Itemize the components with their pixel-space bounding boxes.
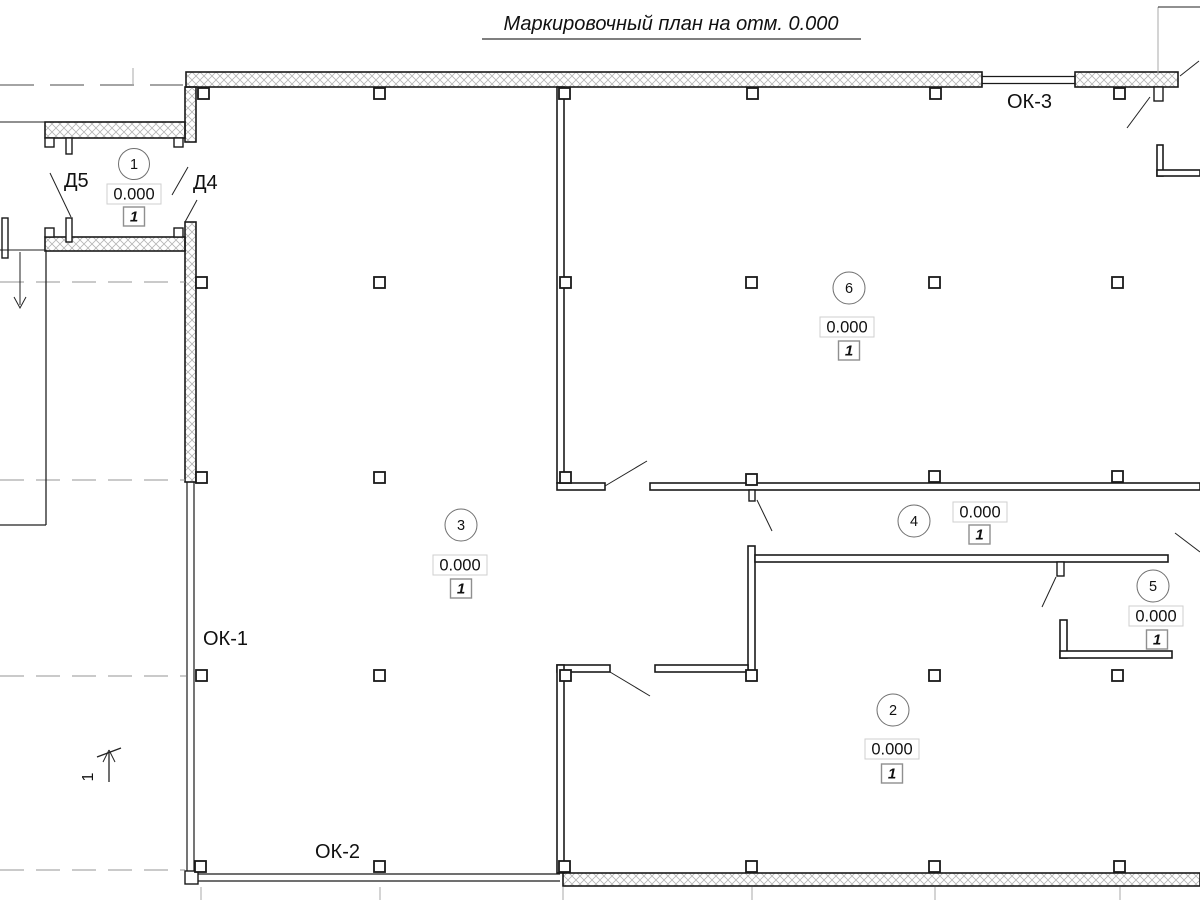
column-marker [196,277,207,288]
door-swing [757,500,772,531]
partition-horizontal-mid [650,483,1200,490]
wall-end-mark [45,228,54,237]
section-number: 1 [80,772,97,781]
wall-bottom [563,873,1200,886]
door-swing [1042,577,1056,607]
column-marker [198,88,209,99]
room-marker-1: 1 0.000 1 [107,149,161,227]
room-number: 6 [845,281,853,297]
column-marker [1112,471,1123,482]
partition-foot [557,483,605,490]
window-ok1-glazing [187,482,194,871]
door-swing-d4-lower [185,200,197,222]
finish-type-value: 1 [845,343,853,360]
column-marker [560,472,571,483]
door-label-d4: Д4 [193,172,218,194]
column-marker [746,861,757,872]
elevation-value: 0.000 [871,741,912,759]
section-mark: 1 [80,748,121,782]
column-marker [559,88,570,99]
column-markers [195,88,1125,872]
elevation-value: 0.000 [826,319,867,337]
column-marker [929,471,940,482]
column-marker [560,277,571,288]
stair-area [0,122,46,525]
finish-type-value: 1 [975,527,983,544]
marking-plan-drawing: Маркировочный план на отм. 0.000 [0,0,1200,900]
leader-line [1180,61,1199,76]
room-number: 2 [889,703,897,719]
wall-vestibule-upper [45,122,185,138]
column-marker [746,277,757,288]
finish-type-value: 1 [457,581,465,598]
window-corner-post [185,871,198,884]
partition-horizontal-45 [755,555,1168,562]
elevation-value: 0.000 [959,504,1000,522]
wall-top-right [1075,72,1178,87]
column-marker [559,861,570,872]
door-jamb [1057,562,1064,576]
column-marker [374,670,385,681]
column-marker [1112,670,1123,681]
column-marker [374,861,385,872]
window-label-ok2: ОК-2 [315,841,360,863]
finish-type-value: 1 [130,209,138,226]
room-number: 4 [910,514,918,530]
column-marker [1114,861,1125,872]
window-ok2-glazing [185,871,560,884]
column-marker [746,474,757,485]
door-post-edge [2,218,8,258]
wall-left-vertical-upper [185,87,196,142]
finish-type-value: 1 [888,766,896,783]
room-number: 5 [1149,579,1157,595]
window-label-ok1: ОК-1 [203,628,248,650]
room-marker-2: 2 0.000 1 [865,694,919,783]
door-post-d5-upper [66,138,72,154]
wall-end-mark [174,138,183,147]
column-marker [374,472,385,483]
room-marker-3: 3 0.000 1 [433,509,487,598]
column-marker [929,277,940,288]
column-marker [196,472,207,483]
column-marker [196,670,207,681]
door-label-d5: Д5 [64,170,89,192]
door-jamb [749,490,755,501]
column-marker [929,670,940,681]
column-marker [747,88,758,99]
column-marker [746,670,757,681]
wall-end-mark [174,228,183,237]
column-marker [560,670,571,681]
partition-vertical-lower [557,665,564,873]
column-marker [929,861,940,872]
partition-l-topright-horiz [1157,170,1200,176]
room-number: 3 [457,518,465,534]
partition-horizontal-lower [655,665,748,672]
door-swing [605,461,647,486]
elevation-value: 0.000 [1135,608,1176,626]
room-number: 1 [130,157,138,173]
wall-top-main [186,72,982,87]
hatched-walls [45,72,1200,886]
section-arrow [103,750,109,762]
door-post-d5-lower [66,218,72,242]
partition-vertical-45 [748,546,755,680]
finish-type-value: 1 [1153,632,1161,649]
elevation-value: 0.000 [113,186,154,204]
leader-line [1127,97,1150,128]
column-marker [374,277,385,288]
wall-end-mark [45,138,54,147]
door-swings [50,61,1200,696]
plan-title: Маркировочный план на отм. 0.000 [503,13,838,35]
elevation-value: 0.000 [439,557,480,575]
room-marker-6: 6 0.000 1 [820,272,874,360]
door-swing [610,672,650,696]
column-marker [1114,88,1125,99]
door-swing-d4-upper [172,167,188,195]
room-marker-5: 5 0.000 1 [1129,570,1183,649]
door-jamb [1154,87,1163,101]
window-label-ok3: ОК-3 [1007,91,1052,113]
wall-left-vertical-lower [185,222,196,482]
column-marker [374,88,385,99]
column-marker [930,88,941,99]
window-ok3-glazing [982,74,1075,86]
column-marker [195,861,206,872]
floor-plan-canvas: Маркировочный план на отм. 0.000 [0,0,1200,900]
door-swing [1175,533,1200,552]
column-marker [1112,277,1123,288]
room-marker-4: 4 0.000 1 [898,502,1007,544]
partition-l-room5-horiz [1060,651,1172,658]
